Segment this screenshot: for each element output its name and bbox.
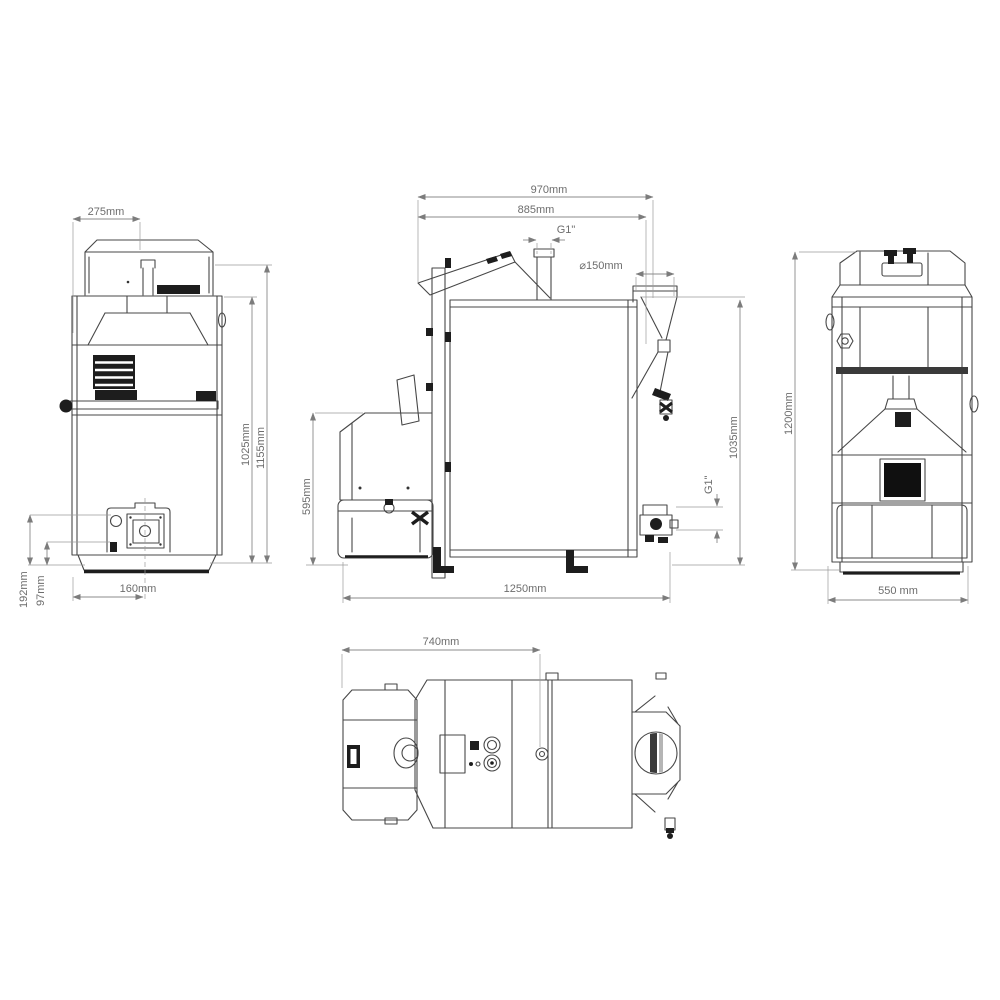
dim-label-1035: 1035mm xyxy=(728,416,740,459)
filler-knobs xyxy=(884,248,916,264)
dim-label-550: 550 mm xyxy=(878,585,918,597)
knob-plate xyxy=(882,263,922,276)
dim-label-g1-return: G1" xyxy=(703,475,715,494)
dim-side-return-fitting: G1" xyxy=(676,475,723,543)
dim-label-1155: 1155mm xyxy=(255,427,267,469)
dim-label-g1-top: G1" xyxy=(557,224,576,236)
handle-bar xyxy=(70,401,222,415)
hopper-vent-slot xyxy=(157,285,200,294)
dim-front-burner-axis: 192mm xyxy=(18,515,111,608)
technical-drawing-page: 275mm 1025mm 1155mm 192mm 97mm 160mm xyxy=(0,0,1000,1000)
rear-left-bump xyxy=(826,314,834,330)
dim-rear-total-height: 1200mm xyxy=(783,252,856,570)
side-body-outline xyxy=(450,300,637,557)
hopper-screw xyxy=(127,281,130,284)
top-view: 740mm xyxy=(342,636,680,839)
dim-label-275: 275mm xyxy=(88,206,125,218)
dim-label-1025: 1025mm xyxy=(240,423,252,466)
dim-label-595: 595mm xyxy=(301,478,313,515)
top-burner xyxy=(343,684,418,824)
rear-center-pipe xyxy=(832,376,972,455)
return-fitting-pump xyxy=(640,505,678,543)
technical-drawing-canvas: 275mm 1025mm 1155mm 192mm 97mm 160mm xyxy=(0,0,1000,1000)
dim-front-hopper-width: 275mm xyxy=(73,206,140,333)
dim-label-970: 970mm xyxy=(531,184,568,196)
burner-assembly-side xyxy=(338,375,433,558)
lid-hinge-ticks xyxy=(486,251,512,264)
hex-fitting-bore xyxy=(842,338,848,344)
dim-label-160: 160mm xyxy=(120,583,157,595)
funnel-section xyxy=(72,296,222,345)
foot-rear xyxy=(566,550,588,573)
rear-hopper-outline xyxy=(840,251,965,285)
dim-side-body-depth: 885mm xyxy=(418,204,646,344)
front-view: 275mm 1025mm 1155mm 192mm 97mm 160mm xyxy=(18,206,272,608)
dim-side-burner-height: 595mm xyxy=(301,413,363,565)
handle-knob xyxy=(60,400,73,413)
dim-label-1200: 1200mm xyxy=(783,392,795,435)
dim-label-150: ⌀150mm xyxy=(579,260,622,272)
dim-label-192: 192mm xyxy=(18,571,30,608)
burner-unit-front xyxy=(107,503,170,552)
rear-dark-band xyxy=(836,367,968,374)
side-view: 970mm 885mm G1" ⌀150mm 595mm 1035mm xyxy=(301,184,745,603)
hopper-lid-sloped xyxy=(418,252,550,298)
top-body xyxy=(445,673,666,828)
dim-label-740: 740mm xyxy=(423,636,460,648)
rear-view: 1200mm 550 mm xyxy=(783,248,978,604)
top-flue-outlet xyxy=(632,696,680,839)
rear-right-bump xyxy=(970,396,978,412)
dim-front-total-height: 1155mm xyxy=(210,265,272,563)
hopper-fill-pipe xyxy=(141,260,155,295)
foot-front xyxy=(433,547,454,573)
dim-label-97: 97mm xyxy=(35,575,47,606)
rear-lower-box xyxy=(832,503,972,558)
dim-label-885: 885mm xyxy=(518,204,555,216)
handle-end-cap xyxy=(196,391,216,401)
rear-base xyxy=(840,562,963,572)
dim-label-1250: 1250mm xyxy=(504,583,547,595)
hex-fitting xyxy=(837,334,853,348)
dim-side-total-depth: 970mm xyxy=(418,184,653,298)
dim-front-body-height: 1025mm xyxy=(224,297,257,563)
top-control-unit xyxy=(415,680,512,828)
flue-assembly xyxy=(632,286,677,421)
vent-lower-strip xyxy=(95,390,137,400)
rear-opening xyxy=(884,463,921,497)
dim-front-burner-offset: 160mm xyxy=(73,577,156,601)
dim-top-front-width: 740mm xyxy=(342,636,540,747)
base-pedestal xyxy=(78,555,216,570)
front-door-column xyxy=(432,268,445,578)
body-outline xyxy=(72,296,222,555)
door-hinges xyxy=(426,258,451,472)
dim-side-total-length: 1250mm xyxy=(343,552,670,603)
